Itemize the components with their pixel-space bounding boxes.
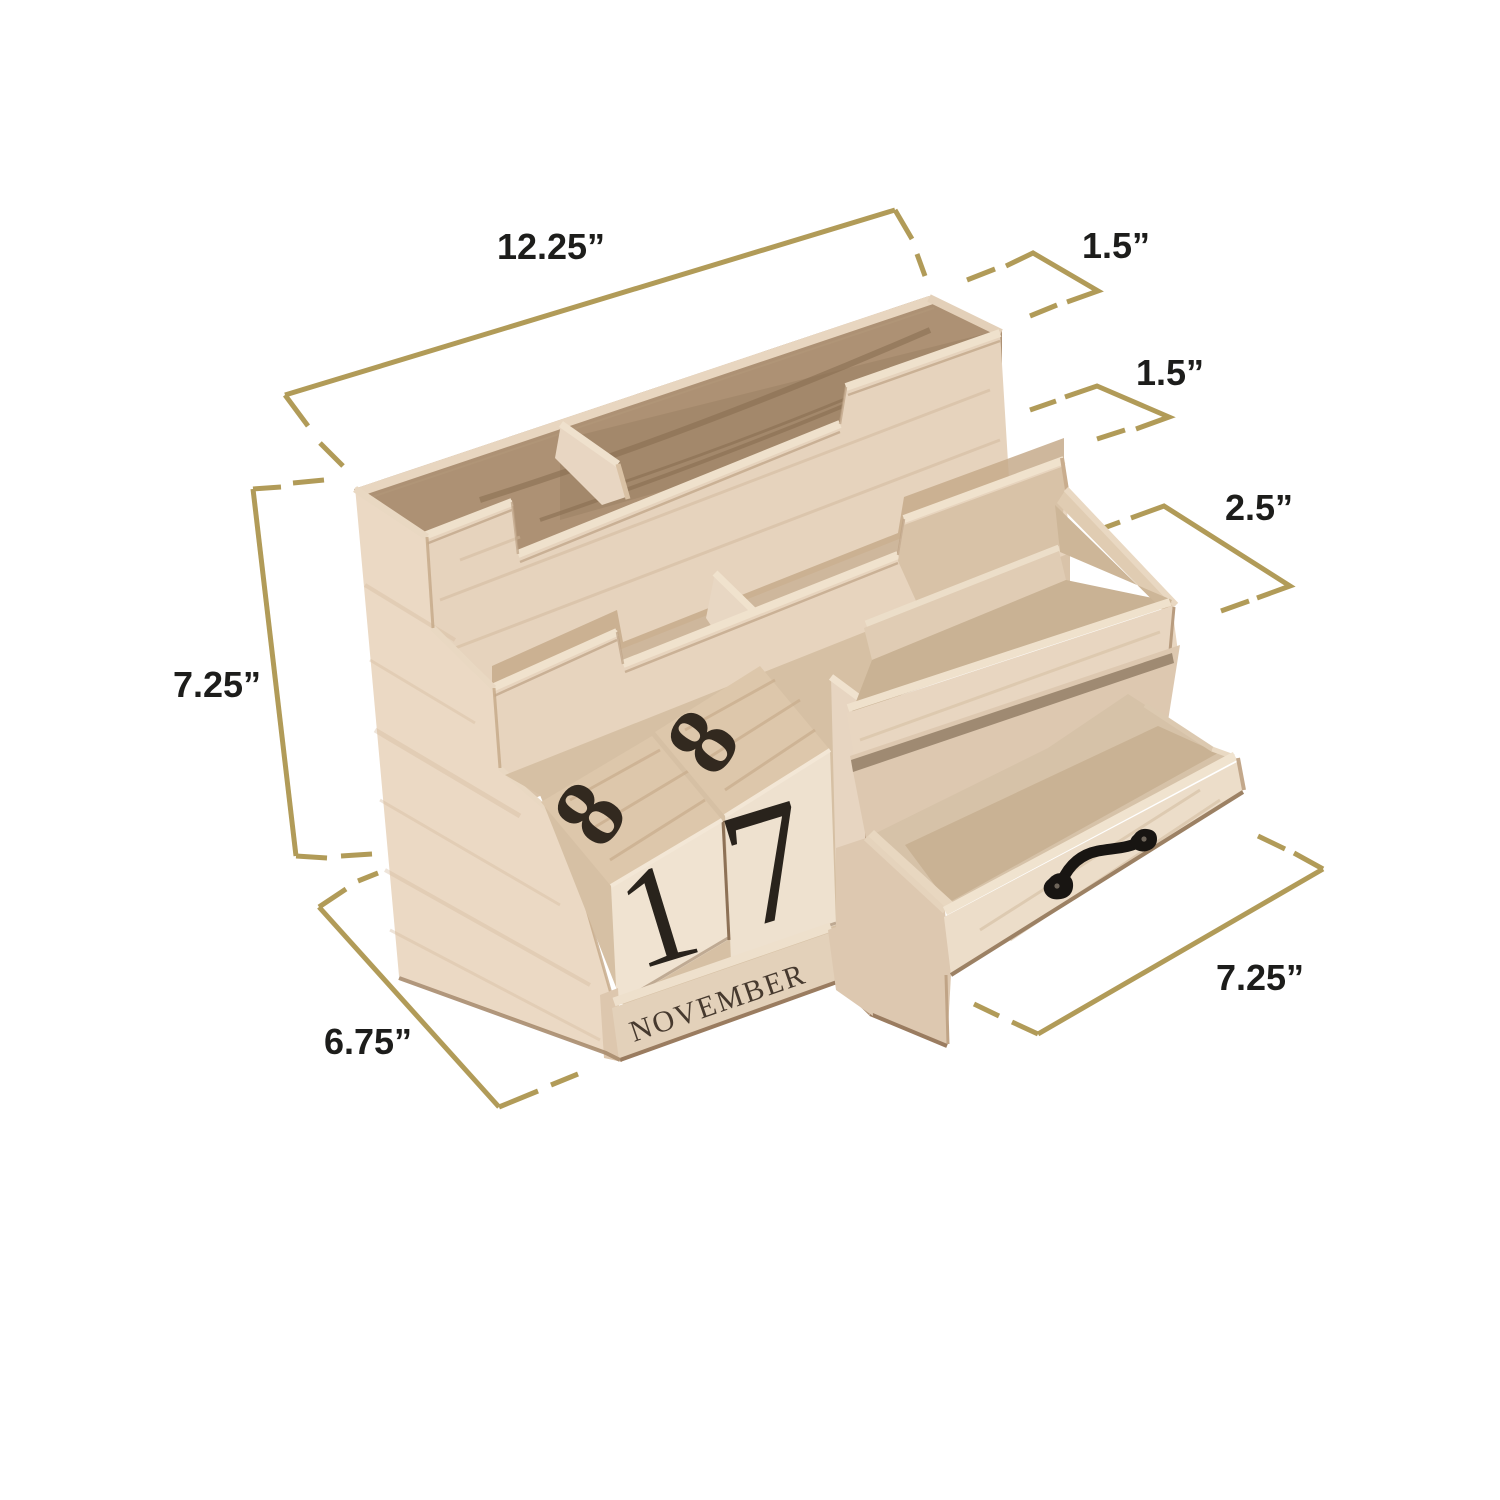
svg-text:7.25”: 7.25” <box>1216 957 1304 998</box>
svg-text:7.25”: 7.25” <box>173 664 261 705</box>
svg-text:2.5”: 2.5” <box>1225 487 1293 528</box>
svg-text:1.5”: 1.5” <box>1082 225 1150 266</box>
svg-text:12.25”: 12.25” <box>497 226 605 267</box>
svg-text:1.5”: 1.5” <box>1136 352 1204 393</box>
svg-text:6.75”: 6.75” <box>324 1021 412 1062</box>
